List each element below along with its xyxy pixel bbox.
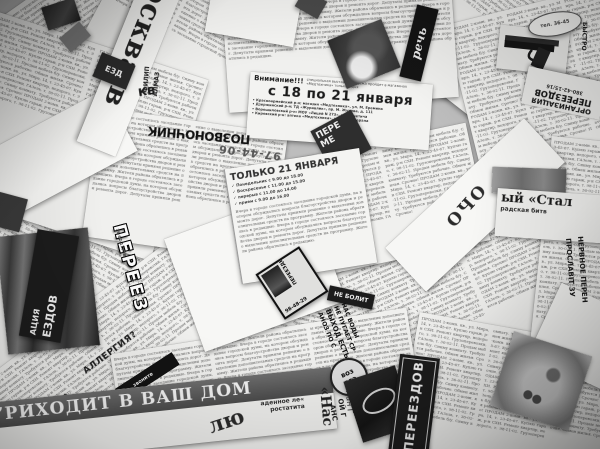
dark-label-text: НЕ БОЛИТ <box>333 290 369 304</box>
banner-pereezdov-text: ПЕРЕЕЗДОВ <box>402 360 427 449</box>
stalingrad-scrap: ый «Стал радская битв <box>494 188 600 244</box>
strip-word-rech: речь <box>408 26 429 61</box>
vertical-bystro: БЫСТРО <box>580 22 588 51</box>
dark-label-text: ЕЗД <box>104 63 124 78</box>
newspaper-collage-photo: Вчера в городе состоялось заседание горо… <box>0 0 600 449</box>
stamp-phone: тел. 36-45 <box>540 18 570 29</box>
